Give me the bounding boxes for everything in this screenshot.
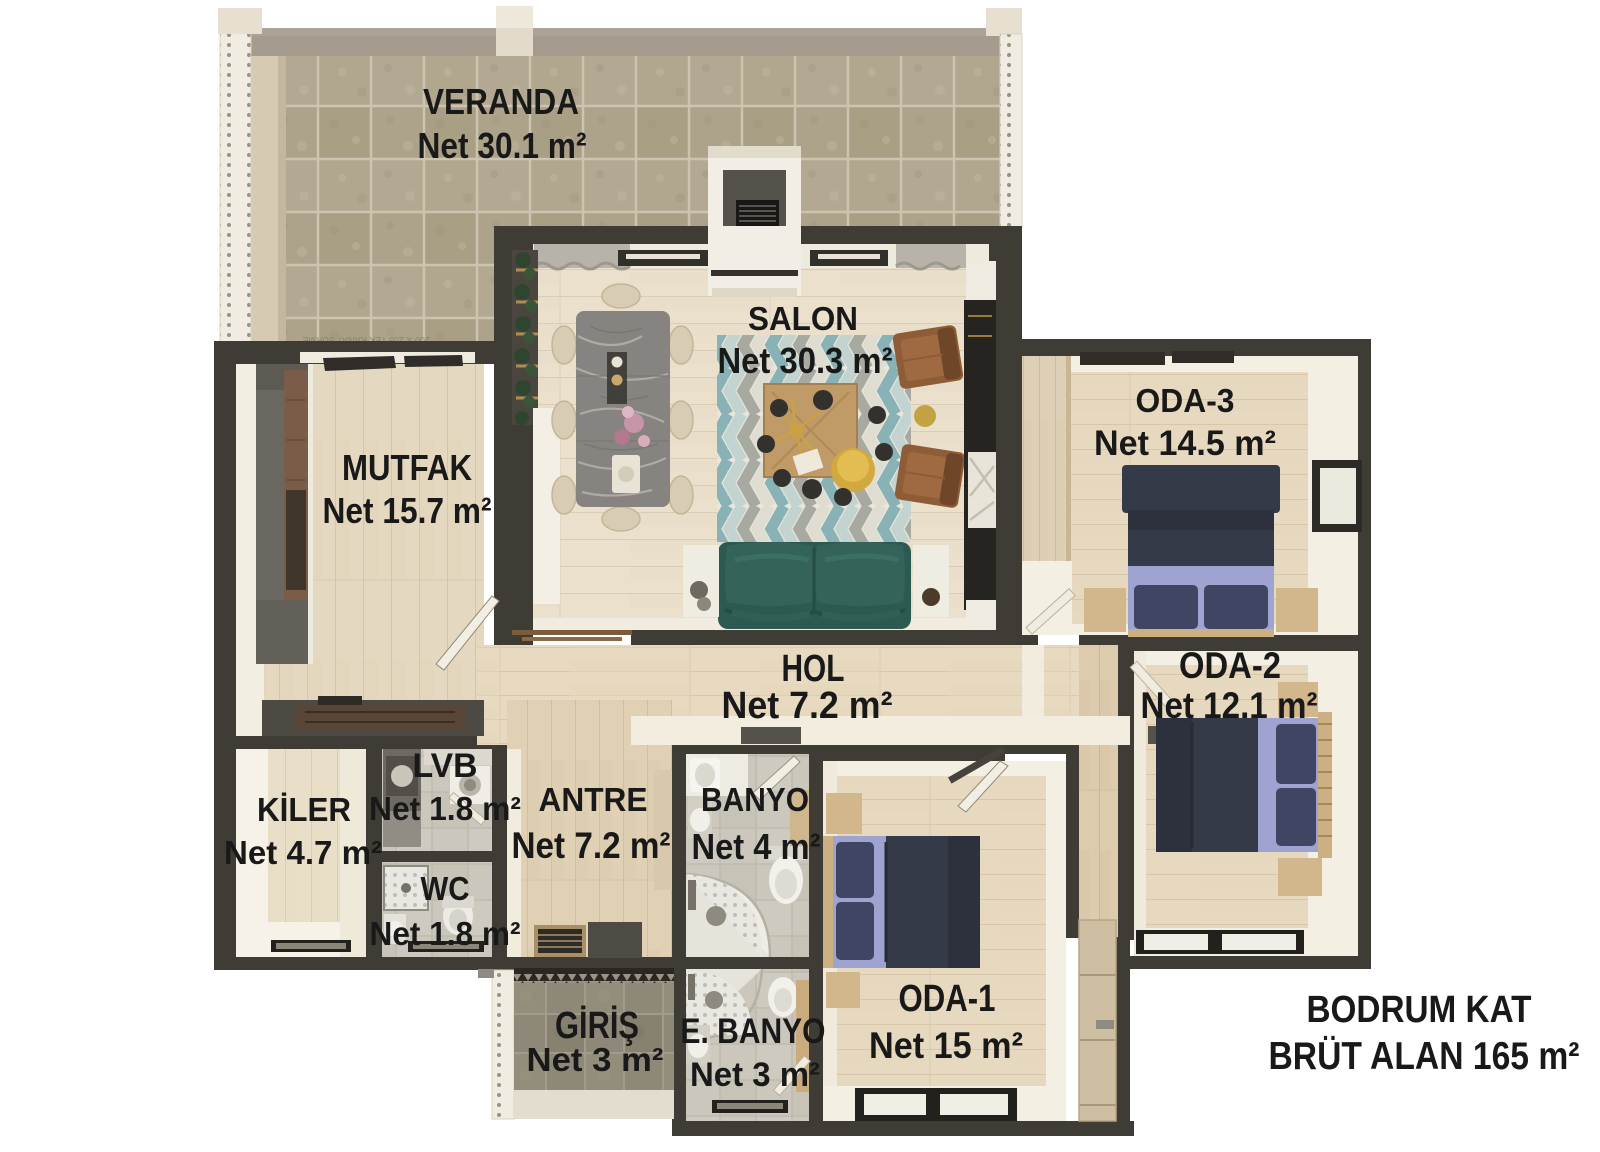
svg-text:Net 30.3 m²: Net 30.3 m² bbox=[718, 340, 893, 381]
svg-text:Net 7.2 m²: Net 7.2 m² bbox=[512, 825, 671, 866]
svg-text:WC: WC bbox=[421, 870, 470, 907]
svg-text:MUTFAK: MUTFAK bbox=[342, 447, 472, 488]
svg-text:Net 1.8 m²: Net 1.8 m² bbox=[370, 915, 521, 952]
svg-text:ODA-2: ODA-2 bbox=[1179, 645, 1281, 686]
svg-text:Net 7.2 m²: Net 7.2 m² bbox=[722, 685, 893, 727]
svg-text:ODA-1: ODA-1 bbox=[899, 978, 996, 1020]
svg-text:Net 14.5 m²: Net 14.5 m² bbox=[1094, 424, 1276, 463]
svg-text:KİLER: KİLER bbox=[257, 791, 351, 828]
svg-text:BRÜT ALAN 165 m²: BRÜT ALAN 165 m² bbox=[1269, 1035, 1580, 1078]
svg-text:BANYO: BANYO bbox=[701, 781, 809, 818]
svg-text:LVB: LVB bbox=[413, 747, 478, 785]
svg-text:Net 15 m²: Net 15 m² bbox=[869, 1025, 1023, 1066]
svg-text:Net 1.8 m²: Net 1.8 m² bbox=[369, 790, 521, 827]
svg-text:E. BANYO: E. BANYO bbox=[681, 1012, 826, 1051]
svg-text:HOL: HOL bbox=[782, 648, 845, 690]
svg-text:Net 3 m²: Net 3 m² bbox=[527, 1041, 664, 1078]
svg-text:Net 4 m²: Net 4 m² bbox=[692, 826, 821, 867]
svg-text:VERANDA: VERANDA bbox=[423, 81, 579, 122]
svg-text:ODA-3: ODA-3 bbox=[1136, 382, 1235, 419]
svg-text:Net 15.7 m²: Net 15.7 m² bbox=[323, 490, 492, 531]
svg-text:ANTRE: ANTRE bbox=[539, 781, 648, 818]
svg-text:Net 12.1 m²: Net 12.1 m² bbox=[1141, 685, 1318, 726]
svg-text:BODRUM KAT: BODRUM KAT bbox=[1307, 989, 1532, 1031]
svg-text:Net 4.7 m²: Net 4.7 m² bbox=[224, 834, 382, 871]
svg-text:Net 3 m²: Net 3 m² bbox=[690, 1056, 820, 1094]
svg-text:Net 30.1 m²: Net 30.1 m² bbox=[418, 125, 587, 166]
svg-text:SALON: SALON bbox=[748, 300, 858, 337]
